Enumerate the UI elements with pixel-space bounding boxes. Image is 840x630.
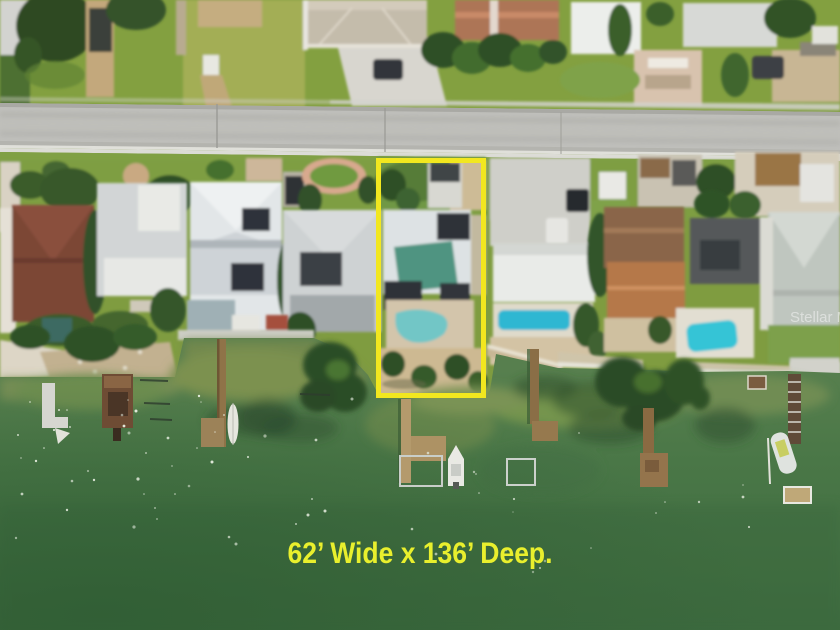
svg-text:Stellar MLS: Stellar MLS [790, 309, 840, 326]
svg-text:62’ Wide x 136’ Deep.: 62’ Wide x 136’ Deep. [288, 537, 553, 570]
